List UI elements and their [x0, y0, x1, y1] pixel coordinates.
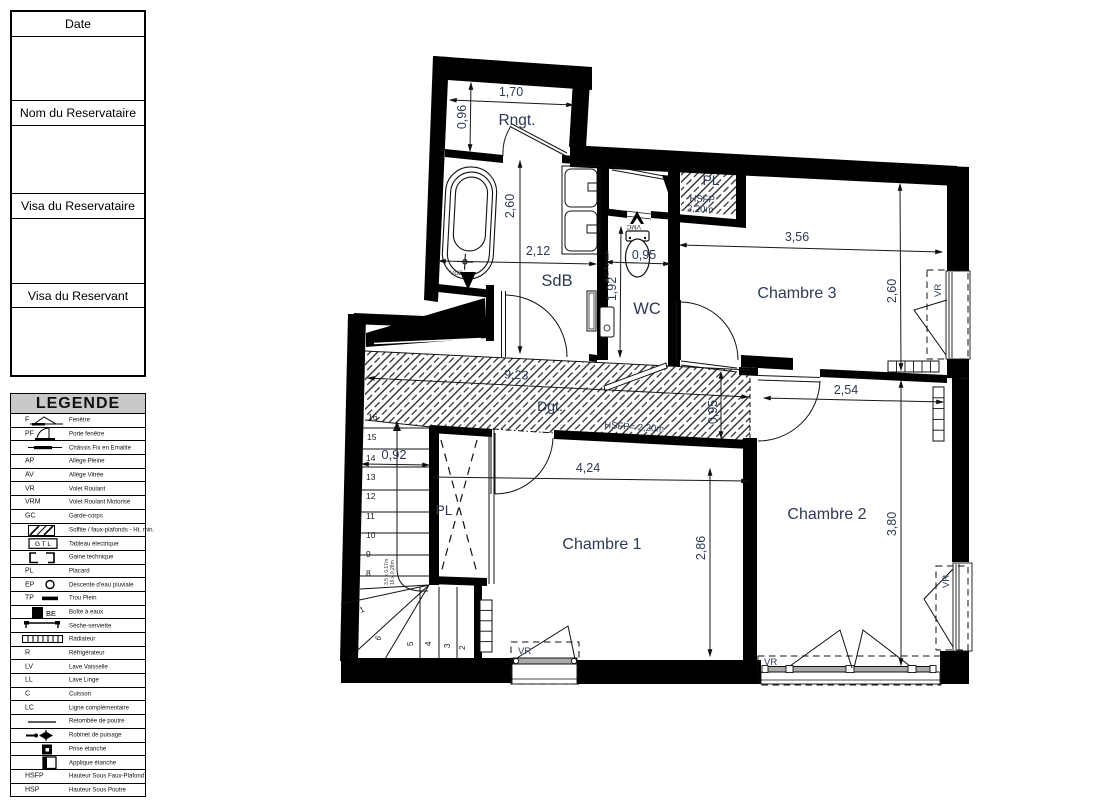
svg-text:2,12: 2,12 — [526, 244, 550, 258]
svg-text:2,20m: 2,20m — [687, 203, 714, 215]
svg-text:3,80: 3,80 — [885, 512, 899, 536]
svg-text:Chambre 1: Chambre 1 — [562, 536, 641, 553]
svg-text:VR: VR — [518, 646, 531, 657]
svg-text:Rngt.: Rngt. — [498, 112, 535, 129]
svg-text:2,54: 2,54 — [834, 383, 858, 397]
svg-text:11: 11 — [366, 511, 375, 521]
svg-text:1: 1 — [358, 605, 366, 615]
svg-text:13: 13 — [366, 472, 376, 482]
svg-text:WC: WC — [633, 300, 661, 318]
svg-text:2,60: 2,60 — [885, 279, 899, 303]
svg-text:PL: PL — [435, 502, 452, 518]
svg-text:4: 4 — [424, 641, 433, 646]
svg-text:3,56: 3,56 — [785, 230, 809, 244]
svg-text:4,24: 4,24 — [576, 461, 600, 475]
svg-text:9,23: 9,23 — [504, 367, 529, 382]
svg-text:15: 15 — [367, 432, 377, 442]
svg-text:2,60: 2,60 — [503, 194, 517, 218]
svg-text:0,92: 0,92 — [381, 447, 406, 462]
svg-text:VMC: VMC — [626, 223, 641, 230]
svg-text:9: 9 — [366, 549, 371, 559]
svg-text:2: 2 — [458, 645, 467, 650]
svg-text:5: 5 — [406, 641, 415, 646]
svg-text:VR: VR — [764, 657, 777, 668]
svg-text:VR: VR — [933, 284, 944, 297]
svg-text:12: 12 — [366, 491, 376, 501]
svg-text:SdB: SdB — [541, 272, 572, 290]
svg-text:6: 6 — [373, 634, 383, 642]
svg-text:2,86: 2,86 — [694, 536, 708, 560]
svg-text:0,96: 0,96 — [455, 105, 469, 129]
svg-text:Chambre 2: Chambre 2 — [787, 506, 866, 523]
svg-text:14: 14 — [366, 453, 376, 463]
svg-text:Chambre 3: Chambre 3 — [757, 285, 836, 302]
svg-text:Dgt.: Dgt. — [537, 398, 563, 414]
svg-text:0,95: 0,95 — [632, 248, 656, 262]
svg-text:PL: PL — [702, 172, 719, 188]
svg-text:16: 16 — [368, 412, 378, 422]
svg-text:8: 8 — [366, 568, 371, 578]
svg-text:16 x 0,28m: 16 x 0,28m — [390, 560, 396, 585]
svg-text:1,70: 1,70 — [499, 85, 523, 99]
svg-text:10: 10 — [366, 530, 376, 540]
svg-text:3: 3 — [443, 643, 452, 648]
svg-text:1,92: 1,92 — [605, 277, 619, 301]
svg-text:VR: VR — [941, 575, 952, 588]
svg-text:0,95: 0,95 — [706, 400, 720, 424]
